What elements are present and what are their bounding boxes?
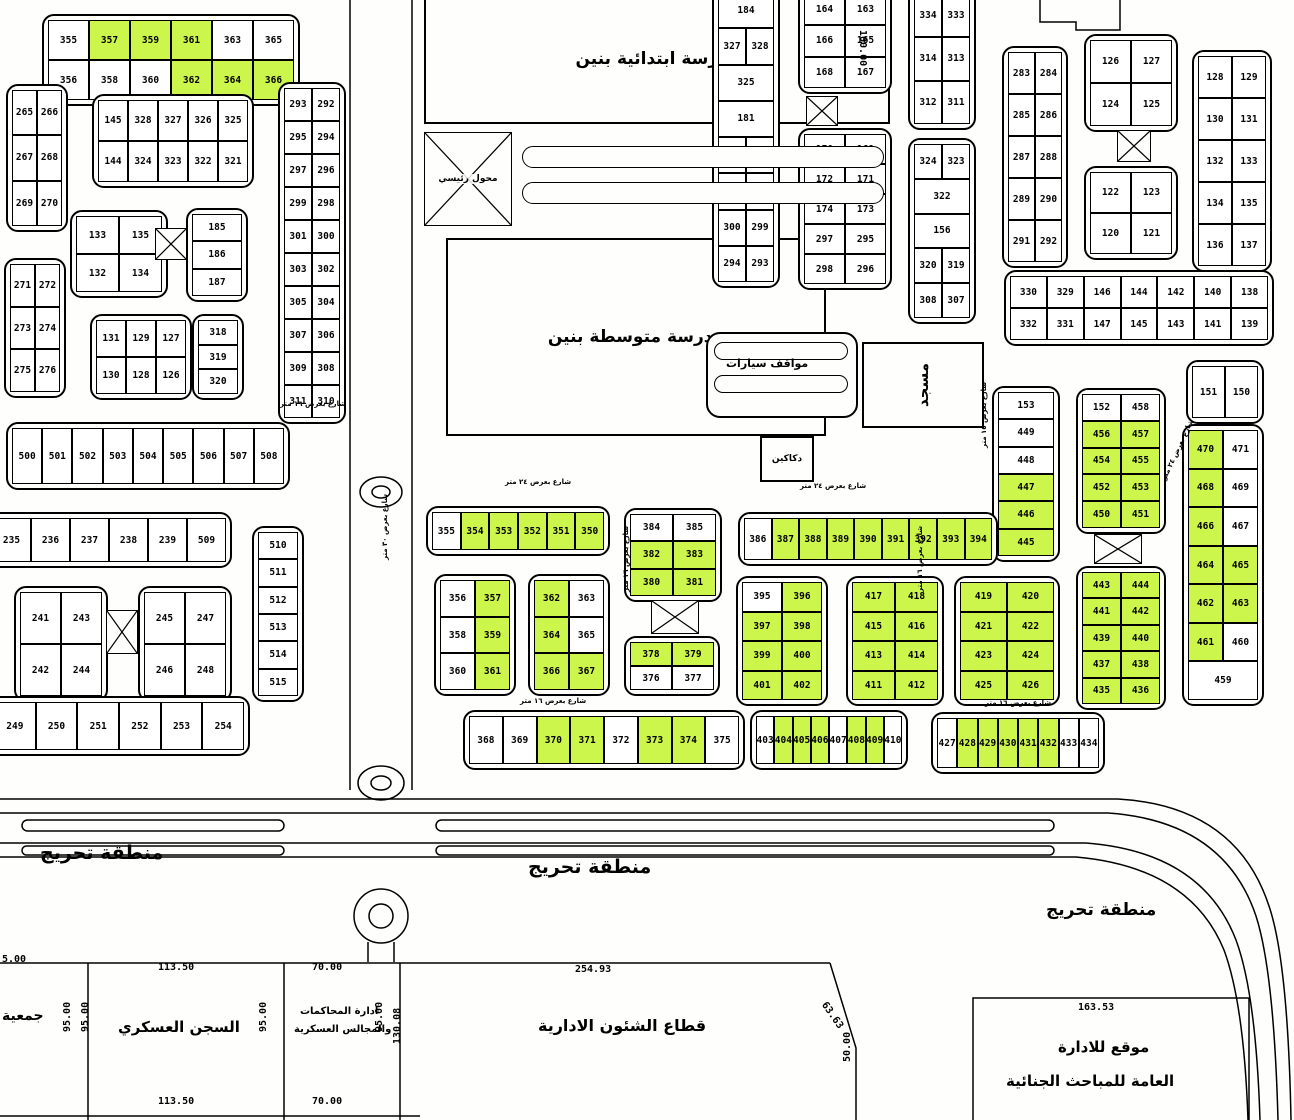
- lot-287: 287: [1008, 136, 1035, 178]
- lot-row: 184: [718, 0, 774, 28]
- lot-297: 297: [284, 154, 312, 187]
- lot-406: 406: [811, 716, 829, 764]
- lot-295: 295: [845, 224, 886, 254]
- lot-505: 505: [163, 428, 193, 484]
- lot-409: 409: [866, 716, 884, 764]
- lot-367: 367: [569, 653, 604, 690]
- lot-247: 247: [185, 592, 226, 644]
- dimension-label: 95.00: [62, 1002, 73, 1032]
- lot-296: 296: [845, 254, 886, 284]
- lot-352: 352: [518, 512, 547, 550]
- lot-394: 394: [965, 518, 993, 560]
- lot-377: 377: [672, 666, 714, 690]
- lot-469: 469: [1223, 469, 1258, 508]
- lot-294: 294: [312, 121, 340, 154]
- lot-block-col-265: 265266267268269270: [6, 84, 68, 232]
- lot-row: 466467: [1188, 507, 1258, 546]
- lot-416: 416: [895, 612, 938, 642]
- lot-327: 327: [718, 28, 746, 64]
- lot-163: 163: [845, 0, 886, 25]
- lot-451: 451: [1121, 501, 1160, 528]
- lot-block-col-470: 470471468469466467464465462463461460459: [1182, 424, 1264, 706]
- lot-300: 300: [312, 220, 340, 253]
- lot-block-blk-384: 384385382383380381: [624, 508, 722, 602]
- lot-414: 414: [895, 641, 938, 671]
- lot-129: 129: [1232, 56, 1266, 98]
- lot-block-col-334b: 324323322156320319308307: [908, 138, 976, 324]
- lot-185: 185: [192, 214, 242, 241]
- lot-block-col-185: 185186187: [186, 208, 248, 302]
- lot-row: 269270: [12, 181, 62, 226]
- lot-row: 308307: [914, 283, 970, 318]
- lot-276: 276: [35, 349, 60, 392]
- lot-466: 466: [1188, 507, 1223, 546]
- lot-row: 464465: [1188, 546, 1258, 585]
- lot-354: 354: [461, 512, 490, 550]
- lot-block-blk-151: 151150: [1186, 360, 1264, 424]
- lot-row: 289290: [1008, 178, 1062, 220]
- lot-row: 470471: [1188, 430, 1258, 469]
- lot-row: 456457: [1082, 421, 1160, 448]
- lot-470: 470: [1188, 430, 1223, 469]
- lot-row: 368369370371372373374375: [469, 716, 739, 764]
- lot-365: 365: [253, 20, 294, 60]
- transformer-5: [651, 600, 699, 634]
- lot-293: 293: [746, 246, 774, 282]
- dimension-label: 95.00: [80, 1002, 91, 1032]
- lot-145: 145: [1121, 308, 1158, 340]
- lot-243: 243: [61, 592, 102, 644]
- lot-429: 429: [978, 718, 998, 768]
- lot-127: 127: [156, 320, 186, 357]
- lot-515: 515: [258, 669, 298, 696]
- lot-458: 458: [1121, 394, 1160, 421]
- lot-row: 435436: [1082, 678, 1160, 704]
- lot-357: 357: [475, 580, 510, 617]
- lot-250: 250: [36, 702, 78, 750]
- lot-row: 152458: [1082, 394, 1160, 421]
- street-label: شارع بعرض ١٦ متر: [916, 526, 924, 592]
- lot-block-strip-403: 403404405406407408409410: [750, 710, 908, 770]
- lot-row: 131129127: [96, 320, 186, 357]
- lot-387: 387: [772, 518, 800, 560]
- lot-393: 393: [937, 518, 965, 560]
- lot-237: 237: [70, 518, 109, 562]
- lot-408: 408: [847, 716, 865, 764]
- criminal-investigations-boundary: [973, 998, 1249, 1120]
- lot-400: 400: [782, 641, 822, 671]
- lot-360: 360: [440, 653, 475, 690]
- lot-329: 329: [1047, 276, 1084, 308]
- lot-434: 434: [1079, 718, 1099, 768]
- lot-285: 285: [1008, 94, 1035, 136]
- lot-row: 360361: [440, 653, 510, 690]
- lot-325: 325: [718, 65, 774, 101]
- lot-504: 504: [133, 428, 163, 484]
- lot-364: 364: [534, 617, 569, 654]
- lot-446: 446: [998, 501, 1054, 528]
- lot-244: 244: [61, 644, 102, 696]
- lot-row: 144324323322321: [98, 141, 248, 182]
- lot-324: 324: [914, 144, 942, 179]
- lot-355: 355: [432, 512, 461, 550]
- dimension-label: 113.50: [158, 962, 194, 973]
- area-label-middle-school: مدرسة متوسطة بنين: [548, 327, 724, 347]
- zone-label: منطقة تحريج: [40, 842, 163, 864]
- lot-156: 156: [914, 214, 970, 249]
- dimension-label: 50.00: [842, 1032, 853, 1062]
- lot-row: 384385: [630, 514, 716, 541]
- lot-411: 411: [852, 671, 895, 701]
- lot-397: 397: [742, 612, 782, 642]
- lot-row: 318: [198, 320, 238, 345]
- lot-320: 320: [198, 369, 238, 394]
- lot-386: 386: [744, 518, 772, 560]
- lot-283: 283: [1008, 52, 1035, 94]
- lot-245: 245: [144, 592, 185, 644]
- lot-block-col-318: 318319320: [192, 314, 244, 400]
- lot-row: 395396: [742, 582, 822, 612]
- lot-353: 353: [489, 512, 518, 550]
- lot-375: 375: [705, 716, 739, 764]
- lot-425: 425: [960, 671, 1007, 701]
- lot-row: 303302: [284, 253, 340, 286]
- lot-row: 364365: [534, 617, 604, 654]
- lot-row: 446: [998, 501, 1054, 528]
- lot-row: 153: [998, 392, 1054, 419]
- lot-row: 285286: [1008, 94, 1062, 136]
- lot-row: 355357359361363365: [48, 20, 294, 60]
- lot-143: 143: [1157, 308, 1194, 340]
- lot-453: 453: [1121, 474, 1160, 501]
- zone-label: مواقف سيارات: [726, 357, 808, 370]
- lot-row: 298296: [804, 254, 886, 284]
- lot-447: 447: [998, 474, 1054, 501]
- lot-323: 323: [942, 144, 970, 179]
- lot-361: 361: [475, 653, 510, 690]
- lot-row: 327328: [718, 28, 774, 64]
- lot-268: 268: [37, 135, 62, 180]
- lot-513: 513: [258, 614, 298, 641]
- lot-row: 514: [258, 641, 298, 668]
- lot-block-strip-427: 427428429430431432433434: [931, 712, 1105, 774]
- lot-399: 399: [742, 641, 782, 671]
- lot-455: 455: [1121, 448, 1160, 475]
- lot-396: 396: [782, 582, 822, 612]
- lot-402: 402: [782, 671, 822, 701]
- lot-132: 132: [1198, 140, 1232, 182]
- dimension-label: 254.93: [575, 964, 611, 975]
- lot-135: 135: [1232, 182, 1266, 224]
- lot-row: 126127: [1090, 40, 1172, 83]
- lot-row: 164163: [804, 0, 886, 25]
- lot-448: 448: [998, 447, 1054, 474]
- lot-row: 386387388389390391392393394: [744, 518, 992, 560]
- lot-383: 383: [673, 541, 716, 568]
- street-label: شارع بعرض ١٦ متر: [985, 699, 1051, 707]
- lot-460: 460: [1223, 623, 1258, 662]
- lot-249: 249: [0, 702, 36, 750]
- lot-413: 413: [852, 641, 895, 671]
- lot-439: 439: [1082, 625, 1121, 651]
- lot-457: 457: [1121, 421, 1160, 448]
- lot-438: 438: [1121, 651, 1160, 677]
- lot-row: 461460: [1188, 623, 1258, 662]
- lot-row: 378379: [630, 642, 714, 666]
- lot-254: 254: [202, 702, 244, 750]
- lot-row: 293292: [284, 88, 340, 121]
- lot-row: 419420: [960, 582, 1054, 612]
- lot-row: 513: [258, 614, 298, 641]
- lot-288: 288: [1035, 136, 1062, 178]
- lot-309: 309: [284, 352, 312, 385]
- lot-319: 319: [942, 248, 970, 283]
- lot-row: 181: [718, 101, 774, 137]
- lot-242: 242: [20, 644, 61, 696]
- dimension-label: 100.00: [857, 30, 868, 66]
- lot-block-strip-500: 500501502503504505506507508: [6, 422, 290, 490]
- lot-137: 137: [1232, 224, 1266, 266]
- lot-row: 128129: [1198, 56, 1266, 98]
- lot-363: 363: [212, 20, 253, 60]
- lot-371: 371: [570, 716, 604, 764]
- lot-block-blk-419: 419420421422423424425426: [954, 576, 1060, 706]
- lot-412: 412: [895, 671, 938, 701]
- lot-row: 287288: [1008, 136, 1062, 178]
- zone-label: جمعية: [2, 1008, 44, 1024]
- dimension-label: 95.00: [258, 1002, 269, 1032]
- lot-351: 351: [547, 512, 576, 550]
- lot-289: 289: [1008, 178, 1035, 220]
- lot-row: 403404405406407408409410: [756, 716, 902, 764]
- lot-150: 150: [1225, 366, 1258, 418]
- lot-block-row-235: 235236237238239509: [0, 512, 232, 568]
- lot-428: 428: [957, 718, 977, 768]
- lot-307: 307: [942, 283, 970, 318]
- lot-298: 298: [312, 187, 340, 220]
- lot-372: 372: [604, 716, 638, 764]
- lot-row: 307306: [284, 319, 340, 352]
- lot-row: 291292: [1008, 220, 1062, 262]
- lot-164: 164: [804, 0, 845, 25]
- lot-130: 130: [1198, 98, 1232, 140]
- lot-362: 362: [534, 580, 569, 617]
- lot-322: 322: [914, 179, 970, 214]
- lot-127: 127: [1131, 40, 1172, 83]
- lot-row: 156: [914, 214, 970, 249]
- lot-row: 515: [258, 669, 298, 696]
- lot-235: 235: [0, 518, 31, 562]
- zone-label: موقع للادارة: [1058, 1038, 1149, 1056]
- median-strip: [22, 820, 284, 831]
- lot-380: 380: [630, 569, 673, 596]
- lot-row: 417418: [852, 582, 938, 612]
- lot-321: 321: [218, 141, 248, 182]
- lot-365: 365: [569, 617, 604, 654]
- lot-row: 423424: [960, 641, 1054, 671]
- transformer-1: [155, 228, 187, 260]
- lot-350: 350: [575, 512, 604, 550]
- lot-row: 443444: [1082, 572, 1160, 598]
- lot-181: 181: [718, 101, 774, 137]
- lot-450: 450: [1082, 501, 1121, 528]
- lot-468: 468: [1188, 469, 1223, 508]
- lot-334: 334: [914, 0, 942, 37]
- lot-272: 272: [35, 264, 60, 307]
- lot-328: 328: [128, 100, 158, 141]
- lot-block-blk-245: 245247246248: [138, 586, 232, 702]
- lot-row: 273274: [10, 307, 60, 350]
- lot-356: 356: [440, 580, 475, 617]
- lot-296: 296: [312, 154, 340, 187]
- zone-label: ادارة المحاكمات: [300, 1006, 378, 1017]
- dimension-label: 95.00: [374, 1002, 385, 1032]
- lot-121: 121: [1131, 213, 1172, 254]
- lot-445: 445: [998, 529, 1054, 556]
- lot-404: 404: [774, 716, 792, 764]
- lot-331: 331: [1047, 308, 1084, 340]
- lot-373: 373: [638, 716, 672, 764]
- lot-398: 398: [782, 612, 822, 642]
- lot-187: 187: [192, 269, 242, 296]
- lot-291: 291: [1008, 220, 1035, 262]
- lot-row: 122123: [1090, 172, 1172, 213]
- area-shops: دكاكين: [760, 436, 814, 482]
- lot-415: 415: [852, 612, 895, 642]
- lot-385: 385: [673, 514, 716, 541]
- lot-row: 312311: [914, 81, 970, 124]
- lot-row: 447: [998, 474, 1054, 501]
- lot-row: 283284: [1008, 52, 1062, 94]
- zone-label: العامة للمباحث الجنائية: [1006, 1072, 1174, 1090]
- lot-303: 303: [284, 253, 312, 286]
- corner-structure: [1040, 0, 1120, 30]
- lot-row: 130128126: [96, 357, 186, 394]
- lot-block-row-146: 3303291461441421401383323311471451431411…: [1004, 270, 1274, 346]
- lot-251: 251: [77, 702, 119, 750]
- lot-313: 313: [942, 37, 970, 80]
- lot-row: 355354353352351350: [432, 512, 604, 550]
- lot-290: 290: [1035, 178, 1062, 220]
- lot-308: 308: [312, 352, 340, 385]
- lot-266: 266: [37, 90, 62, 135]
- lot-307: 307: [284, 319, 312, 352]
- lot-row: 382383: [630, 541, 716, 568]
- lot-507: 507: [224, 428, 254, 484]
- lot-166: 166: [804, 25, 845, 56]
- lot-270: 270: [37, 181, 62, 226]
- lot-row: 425426: [960, 671, 1054, 701]
- lot-block-blk-131: 131129127130128126: [90, 314, 192, 400]
- lot-269: 269: [12, 181, 37, 226]
- lot-row: 319: [198, 345, 238, 370]
- lot-379: 379: [672, 642, 714, 666]
- lot-459: 459: [1188, 661, 1258, 700]
- lot-row: 245247: [144, 592, 226, 644]
- lot-274: 274: [35, 307, 60, 350]
- lot-row: 441442: [1082, 598, 1160, 624]
- lot-389: 389: [827, 518, 855, 560]
- lot-153: 153: [998, 392, 1054, 419]
- lot-row: 305304: [284, 286, 340, 319]
- dimension-label: 70.00: [312, 962, 342, 973]
- lot-row: 297296: [284, 154, 340, 187]
- lot-511: 511: [258, 559, 298, 586]
- lot-374: 374: [672, 716, 706, 764]
- lot-440: 440: [1121, 625, 1160, 651]
- lot-row: 427428429430431432433434: [937, 718, 1099, 768]
- lot-417: 417: [852, 582, 895, 612]
- lot-125: 125: [1131, 83, 1172, 126]
- lot-151: 151: [1192, 366, 1225, 418]
- lot-120: 120: [1090, 213, 1131, 254]
- lot-row: 185: [192, 214, 242, 241]
- lot-471: 471: [1223, 430, 1258, 469]
- dimension-label: 70.00: [312, 1096, 342, 1107]
- lot-row: 322: [914, 179, 970, 214]
- lot-452: 452: [1082, 474, 1121, 501]
- lot-467: 467: [1223, 507, 1258, 546]
- lot-row: 411412: [852, 671, 938, 701]
- lot-row: 468469: [1188, 469, 1258, 508]
- lot-126: 126: [156, 357, 186, 394]
- zone-label: السجن العسكري: [118, 1018, 240, 1036]
- lot-block-blk-362: 362363364365366367: [528, 574, 610, 696]
- lot-432: 432: [1038, 718, 1058, 768]
- lot-382: 382: [630, 541, 673, 568]
- lot-row: 301300: [284, 220, 340, 253]
- lot-row: 512: [258, 587, 298, 614]
- lot-359: 359: [130, 20, 171, 60]
- lot-298: 298: [804, 254, 845, 284]
- street-label: شارع بعرض ٢٤ متر: [505, 478, 571, 486]
- lot-437: 437: [1082, 651, 1121, 677]
- lot-row: 145328327326325: [98, 100, 248, 141]
- lot-323: 323: [158, 141, 188, 182]
- lot-row: 124125: [1090, 83, 1172, 126]
- lot-row: 242244: [20, 644, 102, 696]
- lot-239: 239: [148, 518, 187, 562]
- street-label: شارع بعرض ١٦ متر: [520, 697, 586, 705]
- lot-363: 363: [569, 580, 604, 617]
- zone-label: منطقة تحريج: [1046, 900, 1156, 920]
- lot-144: 144: [98, 141, 128, 182]
- lot-138: 138: [1231, 276, 1268, 308]
- lot-431: 431: [1018, 718, 1038, 768]
- lot-330: 330: [1010, 276, 1047, 308]
- lot-139: 139: [1231, 308, 1268, 340]
- lot-142: 142: [1157, 276, 1194, 308]
- lot-row: 271272: [10, 264, 60, 307]
- lot-388: 388: [799, 518, 827, 560]
- lot-row: 294293: [718, 246, 774, 282]
- lot-row: 380381: [630, 569, 716, 596]
- lot-292: 292: [1035, 220, 1062, 262]
- lot-132: 132: [76, 254, 119, 292]
- lot-block-col-510: 510511512513514515: [252, 526, 304, 702]
- lot-168: 168: [804, 57, 845, 88]
- lot-row: 151150: [1192, 366, 1258, 418]
- lot-row: 309308: [284, 352, 340, 385]
- lot-410: 410: [884, 716, 902, 764]
- lot-357: 357: [89, 20, 130, 60]
- lot-252: 252: [119, 702, 161, 750]
- lot-500: 500: [12, 428, 42, 484]
- lot-449: 449: [998, 419, 1054, 446]
- roundabout-2: [358, 766, 404, 800]
- lot-row: 325: [718, 65, 774, 101]
- lot-441: 441: [1082, 598, 1121, 624]
